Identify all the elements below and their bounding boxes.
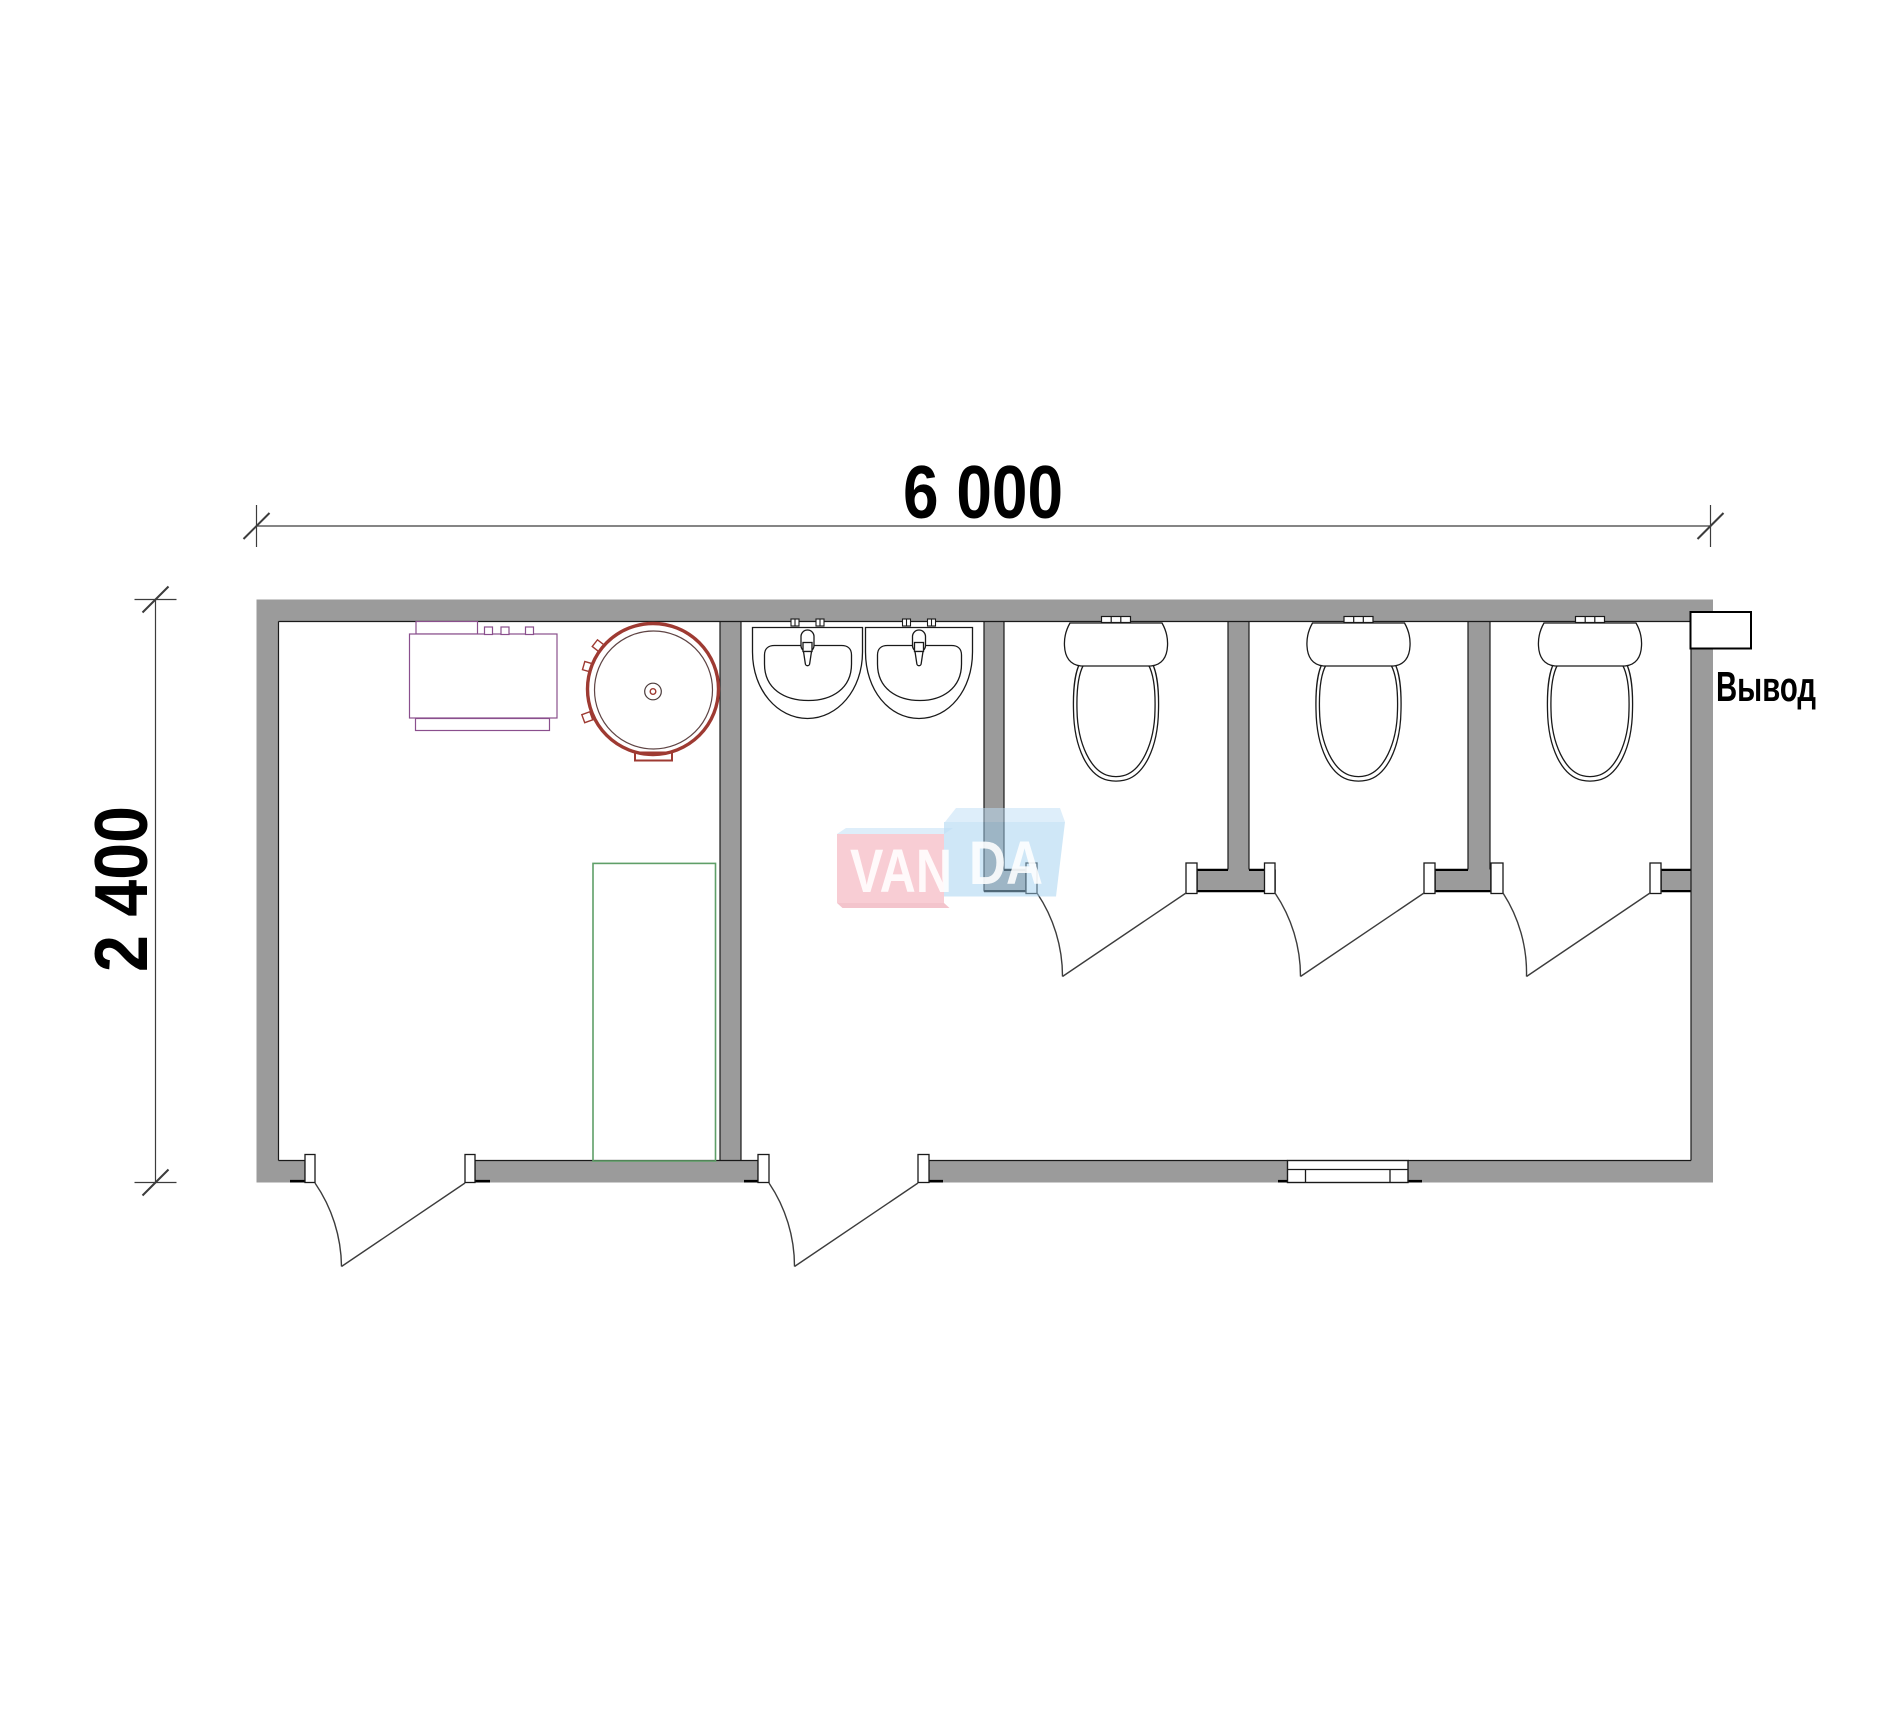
svg-text:2 400: 2 400 [79, 806, 163, 972]
svg-text:Вывод: Вывод [1716, 663, 1816, 710]
svg-text:VAN: VAN [850, 837, 952, 905]
svg-text:6 000: 6 000 [903, 450, 1063, 534]
svg-text:DA: DA [969, 829, 1043, 897]
